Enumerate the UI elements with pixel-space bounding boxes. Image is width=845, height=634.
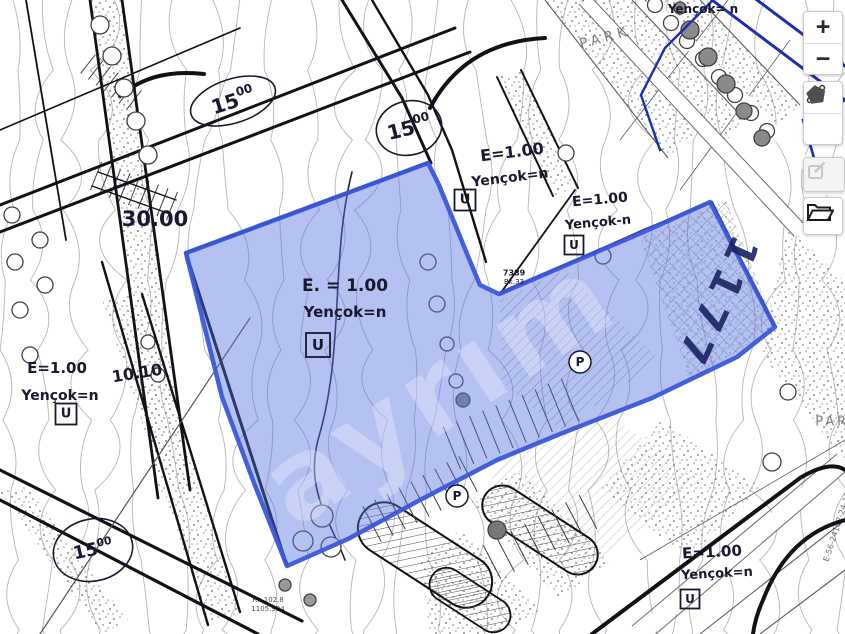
benchmark-label: 1105.904 [251,605,285,613]
svg-text:Yençok=n: Yençok=n [303,303,387,321]
edit-button[interactable] [804,158,844,191]
zoning-label: E=1.00 [682,541,743,562]
svg-text:E=1.00: E=1.00 [682,541,743,562]
draw-polygon-button[interactable] [804,113,842,144]
benchmark-label: Rh.102.8 [252,596,284,604]
road-width-label: 30.00 [122,207,188,231]
zoom-control-group: + − [803,11,843,75]
layers-group [803,197,843,235]
zoning-label: Yençok=n [303,303,387,321]
park-label: PARK [815,415,845,430]
svg-text:E=1.00: E=1.00 [27,359,87,377]
draw-tools-group [803,81,843,145]
zoning-label: Yençok=n [20,388,98,404]
svg-text:P: P [453,489,462,503]
zoom-in-button[interactable]: + [804,12,842,43]
svg-text:1105.904: 1105.904 [251,605,285,613]
svg-text:E. = 1.00: E. = 1.00 [302,276,388,296]
zoom-out-button[interactable]: − [804,43,842,74]
map-viewer: Yençok= nPARKPARK15001500150030.0010.10E… [0,0,845,634]
svg-text:30.00: 30.00 [122,207,188,231]
map-canvas[interactable]: Yençok= nPARKPARK15001500150030.0010.10E… [0,0,845,634]
layers-button[interactable] [804,198,842,234]
parking-symbol: P [446,485,468,507]
svg-text:Yençok= n: Yençok= n [667,2,738,16]
zoning-label: E. = 1.00 [302,276,388,296]
svg-text:PARK: PARK [815,415,845,430]
svg-text:U: U [61,407,72,422]
svg-text:U: U [685,592,695,606]
edit-tool-group [803,157,845,192]
svg-text:Yençok=n: Yençok=n [20,388,98,404]
zoning-label: Yençok= n [667,2,738,16]
svg-text:U: U [312,336,324,354]
svg-text:U: U [460,193,471,208]
zoning-label: E=1.00 [27,359,87,377]
svg-text:Rh.102.8: Rh.102.8 [252,596,284,604]
